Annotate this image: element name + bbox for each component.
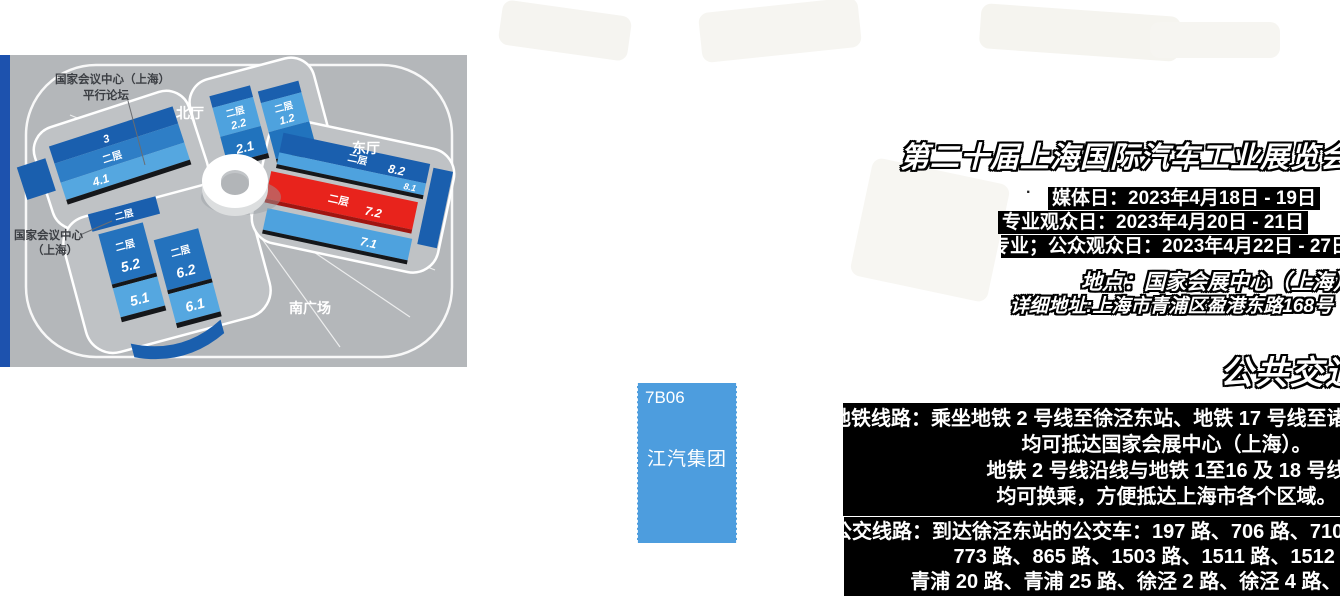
ghost-artifact bbox=[1150, 22, 1280, 58]
metro-line-1: 地铁线路：乘坐地铁 2 号线至徐泾东站、地铁 17 号线至诸光路站 bbox=[843, 406, 1340, 432]
schedule-bullet: · bbox=[1026, 184, 1031, 202]
schedule-line-public-days: 专业；公众观众日：2023年4月22日 - 27日 bbox=[1001, 235, 1340, 258]
ghost-artifact bbox=[849, 157, 1011, 303]
floor-map-illustration: 二层 2.2 2.1 二层 1.2 1.1 3 二层 4.1 二层 二层 5.2… bbox=[10, 55, 467, 367]
address-line: 详细地址:上海市青浦区盈港东路168号 bbox=[1010, 291, 1333, 318]
bus-line-1: 公交线路：到达徐泾东站的公交车：197 路、706 路、710 路、 bbox=[844, 520, 1340, 545]
schedule-line-professional-days: 专业观众日：2023年4月20日 - 21日 bbox=[998, 211, 1308, 234]
venue-note-line2: （上海） bbox=[32, 243, 78, 257]
schedule-line-public-days-text: 专业；公众观众日：2023年4月22日 - 27日 bbox=[1001, 235, 1340, 258]
bus-info-block: 公交线路：到达徐泾东站的公交车：197 路、706 路、710 路、 773 路… bbox=[844, 517, 1340, 596]
metro-line-3: 地铁 2 号线沿线与地铁 1至16 及 18 号线 bbox=[843, 458, 1340, 484]
schedule-line-media-day: 媒体日：2023年4月18日 - 19日 bbox=[1048, 187, 1320, 210]
east-hall-label: 东厅 bbox=[352, 140, 380, 156]
south-plaza-label: 南广场 bbox=[289, 300, 331, 316]
venue-floor-map: 二层 2.2 2.1 二层 1.2 1.1 3 二层 4.1 二层 二层 5.2… bbox=[10, 55, 467, 367]
venue-note-line1: 国家会议中心 bbox=[14, 228, 83, 242]
metro-line-4: 均可换乘，方便抵达上海市各个区域。 bbox=[843, 484, 1340, 510]
ghost-artifact bbox=[498, 0, 633, 62]
left-accent-stripe bbox=[0, 55, 10, 367]
ghost-artifact bbox=[698, 0, 862, 63]
metro-info-block: 地铁线路：乘坐地铁 2 号线至徐泾东站、地铁 17 号线至诸光路站 均可抵达国家… bbox=[843, 403, 1340, 516]
metro-line-2: 均可抵达国家会展中心（上海）。 bbox=[843, 432, 1340, 458]
booth-company-name: 江汽集团 bbox=[638, 444, 736, 471]
exhibition-title: 第二十届上海国际汽车工业展览会 bbox=[900, 134, 1340, 176]
forum-note-line1: 国家会议中心（上海） bbox=[55, 72, 170, 86]
bus-line-2: 773 路、865 路、1503 路、1511 路、1512 路、 bbox=[844, 545, 1340, 570]
booth-box[interactable]: 7B06 江汽集团 bbox=[637, 383, 737, 543]
north-hall-label: 北厅 bbox=[176, 105, 204, 121]
booth-number: 7B06 bbox=[638, 383, 736, 408]
public-transport-heading: 公共交通 bbox=[1220, 346, 1340, 394]
bus-line-3: 青浦 20 路、青浦 25 路、徐泾 2 路、徐泾 4 路、徐泾 5 路 bbox=[844, 570, 1340, 595]
forum-note-line2: 平行论坛 bbox=[83, 88, 129, 102]
